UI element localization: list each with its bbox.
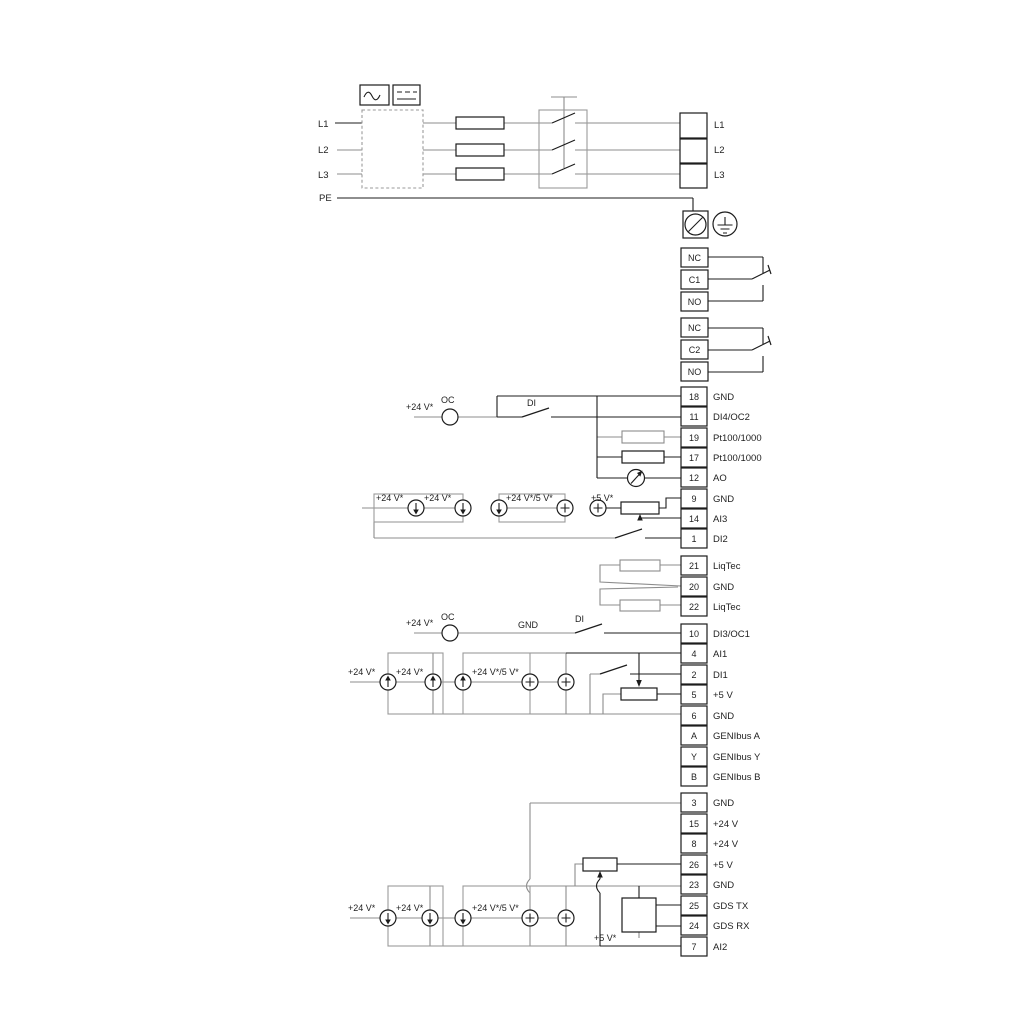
terminal-number: 23 — [689, 880, 699, 890]
terminal-number: 21 — [689, 561, 699, 571]
terminal-number: 2 — [691, 670, 696, 680]
terminal-number: 24 — [689, 921, 699, 931]
potentiometer — [621, 502, 659, 514]
voltage-label: +5 V* — [591, 493, 614, 503]
terminal-label: L3 — [714, 170, 725, 181]
emc-filter-box — [362, 110, 423, 188]
terminal-label: Pt100/1000 — [713, 433, 762, 444]
terminal-label: L1 — [714, 120, 725, 131]
terminal-label: DI3/OC1 — [713, 629, 750, 640]
terminal-number: 1 — [691, 534, 696, 544]
terminal-number: 22 — [689, 602, 699, 612]
ac-symbol-icon — [360, 85, 389, 105]
terminal-label: AI1 — [713, 649, 727, 660]
mains-terminal-block: L1 L2 L3 — [680, 113, 725, 188]
oc-label: OC — [441, 612, 455, 622]
terminal-number: Y — [691, 752, 697, 762]
terminal-label: GND — [713, 582, 734, 593]
voltage-label: +24 V* — [396, 903, 424, 913]
open-collector-icon — [442, 625, 458, 641]
terminal-cell — [680, 113, 707, 138]
terminal-label: GDS RX — [713, 921, 750, 932]
line-label: L2 — [318, 145, 329, 156]
resistor — [620, 600, 660, 611]
sensor-group-box — [463, 653, 530, 714]
terminal-label: +5 V — [713, 690, 733, 701]
fuse — [456, 144, 504, 156]
di-label: DI — [575, 614, 584, 624]
voltage-label: +24 V* — [424, 493, 452, 503]
terminal-label: +24 V — [713, 839, 739, 850]
terminal-number: NO — [688, 367, 702, 377]
terminal-number: 5 — [691, 690, 696, 700]
terminal-label: GND — [713, 798, 734, 809]
mains-input-labels: L1 L2 L3 PE — [318, 119, 332, 204]
oc-label: OC — [441, 395, 455, 405]
potentiometer — [621, 688, 657, 700]
terminal-number: 15 — [689, 819, 699, 829]
voltage-label: +24 V* — [396, 667, 424, 677]
line-label: L1 — [318, 119, 329, 130]
terminal-number: 14 — [689, 514, 699, 524]
resistor — [620, 560, 660, 571]
terminal-number: C2 — [689, 345, 701, 355]
di-label: DI — [527, 398, 536, 408]
terminal-number: 12 — [689, 473, 699, 483]
terminal-label: DI2 — [713, 534, 728, 545]
terminal-label: GENIbus Y — [713, 752, 761, 763]
voltage-label: +24 V* — [348, 667, 376, 677]
terminal-label: GND — [713, 711, 734, 722]
terminal-number: 8 — [691, 839, 696, 849]
voltage-label: +24 V* — [348, 903, 376, 913]
terminal-number: 17 — [689, 453, 699, 463]
terminal-number: 20 — [689, 582, 699, 592]
terminal-number: 4 — [691, 649, 696, 659]
potentiometer — [583, 858, 617, 871]
io-terminal-strip-3: 3GND 15+24 V 8+24 V 26+5 V 23GND 25GDS T… — [681, 793, 750, 956]
terminal-label: +5 V — [713, 860, 733, 871]
relay-2-terminals: NC C2 NO — [681, 318, 708, 381]
wiring-diagram: L1 L2 L3 L1 L2 L3 PE NC C1 NO NC C2 NO 1… — [0, 0, 1024, 1024]
terminal-number: A — [691, 731, 697, 741]
terminal-cell — [680, 139, 707, 163]
terminal-label: Pt100/1000 — [713, 453, 762, 464]
open-collector-icon — [442, 409, 458, 425]
terminal-number: 7 — [691, 942, 696, 952]
fuses — [456, 117, 504, 180]
fuse — [456, 117, 504, 129]
gds-sensor-box — [622, 898, 656, 932]
terminal-label: GND — [713, 880, 734, 891]
voltage-label: +5 V* — [594, 933, 617, 943]
terminal-label: LiqTec — [713, 561, 741, 572]
terminal-label: +24 V — [713, 819, 739, 830]
terminal-label: GND — [713, 494, 734, 505]
terminal-label: GENIbus A — [713, 731, 761, 742]
terminal-number: 19 — [689, 433, 699, 443]
gnd-label: GND — [518, 620, 539, 630]
terminal-label: AI3 — [713, 514, 727, 525]
voltage-label: +24 V* — [406, 618, 434, 628]
terminal-number: 25 — [689, 901, 699, 911]
line-label: L3 — [318, 170, 329, 181]
terminal-label: DI1 — [713, 670, 728, 681]
terminal-cell — [680, 164, 707, 188]
terminal-label: GENIbus B — [713, 772, 761, 783]
terminal-number: 6 — [691, 711, 696, 721]
terminal-number: NC — [688, 323, 701, 333]
relay-1-terminals: NC C1 NO — [681, 248, 708, 311]
io-terminal-strip-2: 10DI3/OC1 4AI1 2DI1 5+5 V 6GND AGENIbus … — [681, 624, 761, 786]
terminal-label: GDS TX — [713, 901, 749, 912]
voltage-label: +24 V*/5 V* — [472, 903, 519, 913]
voltage-label: +24 V*/5 V* — [472, 667, 519, 677]
terminal-label: LiqTec — [713, 602, 741, 613]
terminal-number: 26 — [689, 860, 699, 870]
sensor-group-box — [463, 886, 530, 946]
io-terminal-strip-1: 18GND 11DI4/OC2 19Pt100/1000 17Pt100/100… — [681, 387, 762, 548]
terminal-number: NO — [688, 297, 702, 307]
terminal-number: 3 — [691, 798, 696, 808]
voltage-label: +24 V*/5 V* — [506, 493, 553, 503]
terminal-number: 9 — [691, 494, 696, 504]
terminal-number: NC — [688, 253, 701, 263]
voltage-label: +24 V* — [406, 402, 434, 412]
sensor-option-boxes — [374, 494, 565, 946]
terminal-label: AO — [713, 473, 727, 484]
terminal-label: AI2 — [713, 942, 727, 953]
line-label: PE — [319, 193, 332, 204]
dc-symbol-icon — [393, 85, 420, 105]
resistor — [622, 431, 664, 443]
resistor — [622, 451, 664, 463]
terminal-label: DI4/OC2 — [713, 412, 750, 423]
fuse — [456, 168, 504, 180]
liqtec-terminal-strip: 21LiqTec 20GND 22LiqTec — [681, 556, 741, 616]
terminal-number: 10 — [689, 629, 699, 639]
terminal-number: 18 — [689, 392, 699, 402]
terminal-label: GND — [713, 392, 734, 403]
terminal-number: B — [691, 772, 697, 782]
voltage-label: +24 V* — [376, 493, 404, 503]
wiring-diagram-page: L1 L2 L3 L1 L2 L3 PE NC C1 NO NC C2 NO 1… — [0, 0, 1024, 1024]
main-switch-box — [539, 110, 587, 188]
terminal-number: C1 — [689, 275, 701, 285]
terminal-label: L2 — [714, 145, 725, 156]
terminal-number: 11 — [689, 412, 698, 422]
